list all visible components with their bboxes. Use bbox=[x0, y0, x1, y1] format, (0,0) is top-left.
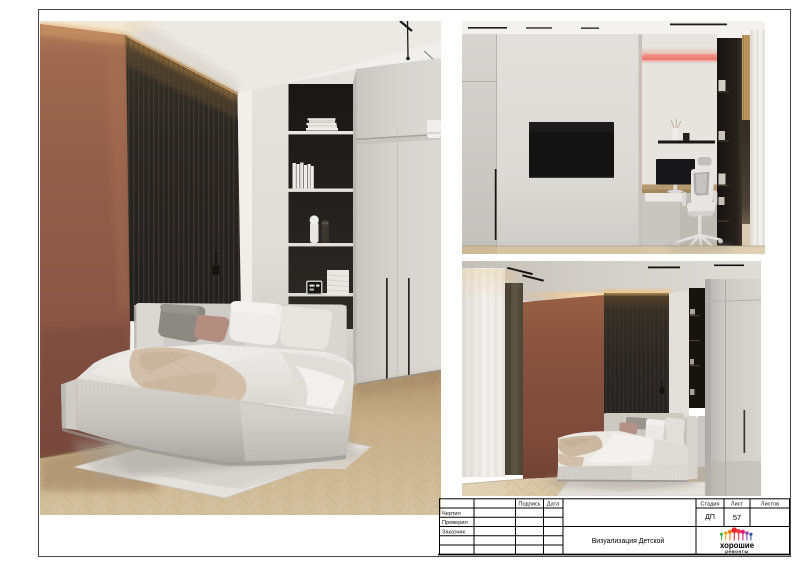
svg-text:Подпись: Подпись bbox=[518, 502, 540, 508]
svg-text:Стадия: Стадия bbox=[700, 502, 719, 508]
svg-text:Лист: Лист bbox=[731, 502, 744, 508]
svg-text:Заказчик: Заказчик bbox=[442, 529, 466, 535]
svg-text:ремонты: ремонты bbox=[725, 549, 749, 554]
svg-text:ДП: ДП bbox=[705, 514, 715, 521]
svg-text:Чертил: Чертил bbox=[442, 511, 461, 517]
svg-text:Дата: Дата bbox=[547, 502, 560, 508]
svg-text:57: 57 bbox=[733, 513, 741, 522]
svg-text:Листов: Листов bbox=[761, 502, 779, 508]
svg-text:Проверил: Проверил bbox=[442, 520, 468, 526]
svg-text:Визуализация Детской: Визуализация Детской bbox=[592, 537, 665, 545]
